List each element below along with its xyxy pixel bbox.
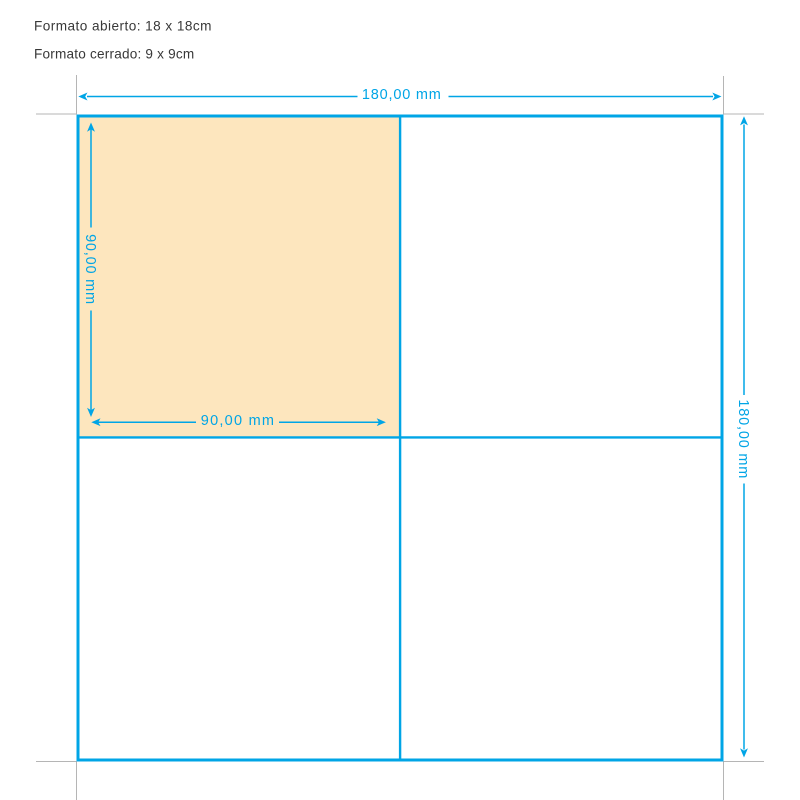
svg-text:90,00 mm: 90,00 mm (82, 234, 98, 305)
svg-text:Formato abierto: 18 x 18cm: Formato abierto: 18 x 18cm (34, 19, 212, 34)
svg-text:90,00 mm: 90,00 mm (201, 413, 275, 429)
svg-text:Formato cerrado: 9 x 9cm: Formato cerrado: 9 x 9cm (34, 46, 194, 61)
svg-text:180,00 mm: 180,00 mm (362, 87, 442, 103)
svg-text:180,00 mm: 180,00 mm (735, 399, 751, 479)
